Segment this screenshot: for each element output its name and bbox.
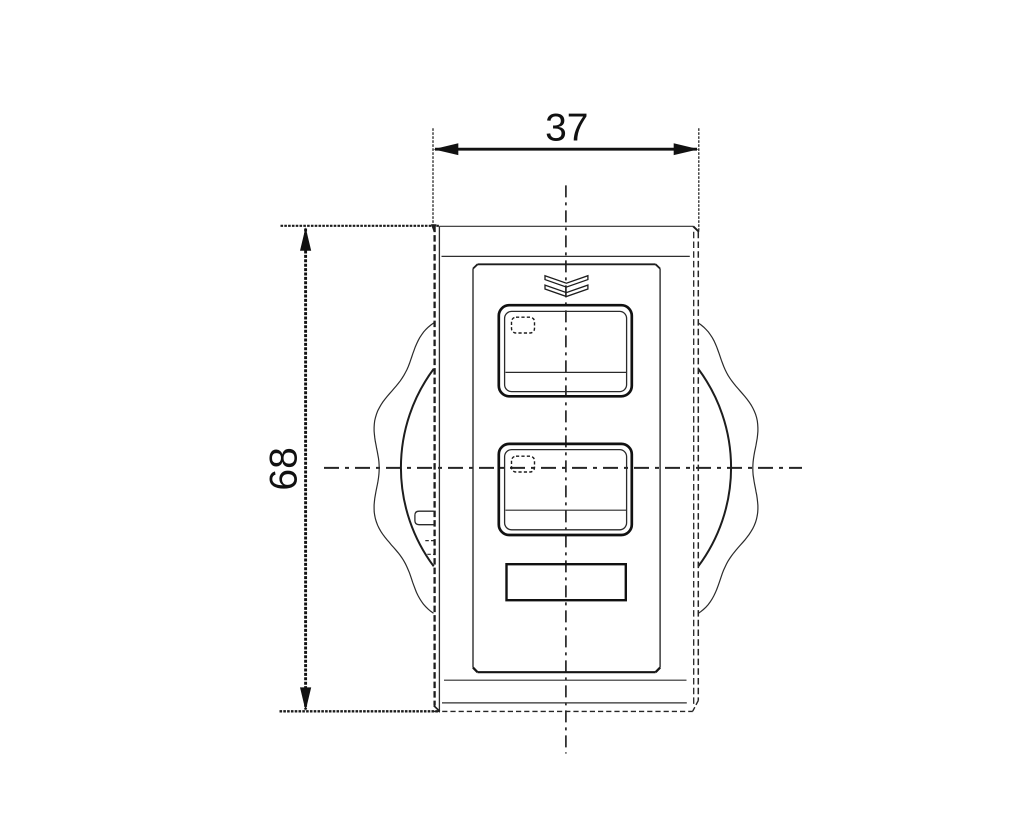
svg-text:37: 37	[545, 107, 588, 150]
svg-text:68: 68	[262, 447, 305, 490]
